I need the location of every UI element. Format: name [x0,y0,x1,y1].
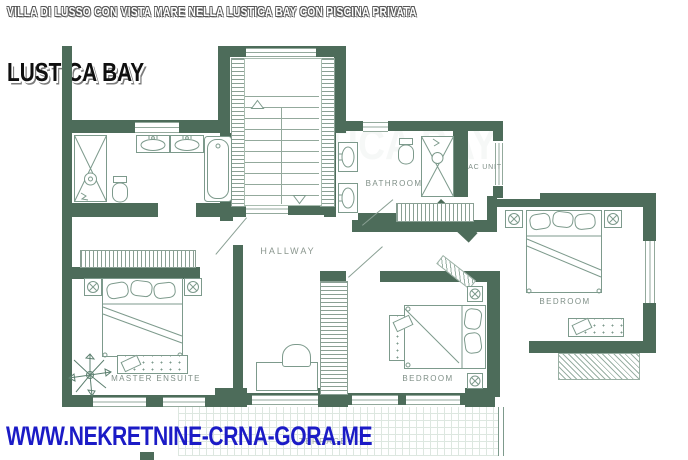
room-label-master-ensuite: MASTER ENSUITE [111,374,201,383]
wall [453,131,468,197]
nightstand-lamp [184,278,202,296]
room-label-bedroom-right: BEDROOM [539,297,590,306]
window [246,48,316,57]
wall [540,193,656,207]
wall [215,388,247,408]
page-title: LUSTICA BAY [7,57,144,88]
window [645,241,655,303]
wall [529,341,656,353]
wall [320,271,346,281]
closet [320,58,335,207]
window [352,395,398,405]
sink [338,183,358,213]
double-bed [524,206,604,296]
room-label-ac-unit: AC UNIT [468,164,502,171]
bathtub [204,136,232,202]
nightstand-lamp [84,278,102,296]
shower [74,135,107,202]
wardrobe [320,281,348,395]
wall [388,121,503,131]
floorplan-image: VILLA DI LUSSO CON VISTA MARE NELLA LUST… [0,0,688,460]
window [252,395,318,405]
stair-down-arrow [293,195,306,204]
sink [338,142,358,172]
window [363,122,388,132]
toilet [397,138,415,165]
wall [643,193,656,241]
terrace-edge [498,407,504,456]
wardrobe [80,250,196,268]
room-label-bedroom-middle: BEDROOM [402,374,453,383]
vanity-mirror [282,344,311,367]
sink [170,135,204,153]
room-label-hallway: HALLWAY [260,246,315,256]
nightstand-lamp [505,210,523,228]
nightstand-lamp [467,373,483,389]
stair-treads [245,96,319,204]
window [135,122,179,133]
plant-icon [66,350,114,400]
listing-subtitle: VILLA DI LUSSO CON VISTA MARE NELLA LUST… [7,4,417,19]
balcony [558,353,640,380]
wardrobe [396,203,474,222]
nightstand-lamp [604,210,622,228]
wall [465,388,495,408]
website-url: WWW.NEKRETNINE-CRNA-GORA.ME [6,421,372,452]
sink [136,135,170,153]
window [163,397,205,407]
wall [233,245,243,393]
bed-bench [117,355,188,374]
bed-bench [389,315,405,361]
master-bed [100,274,185,360]
double-bed [402,303,488,371]
room-label-bathroom: BATHROOM [366,179,423,188]
wall [493,131,503,141]
toilet [111,176,129,203]
wall [62,46,72,402]
wall [338,121,363,131]
wall [140,452,154,460]
stair-rail [281,108,282,204]
door-swing [348,246,383,278]
wall [62,203,158,217]
stair-up-arrow [251,100,264,109]
nightstand-lamp [467,286,483,302]
shower [421,136,454,197]
dresser [568,318,624,337]
wall [487,271,500,397]
window [406,395,460,405]
